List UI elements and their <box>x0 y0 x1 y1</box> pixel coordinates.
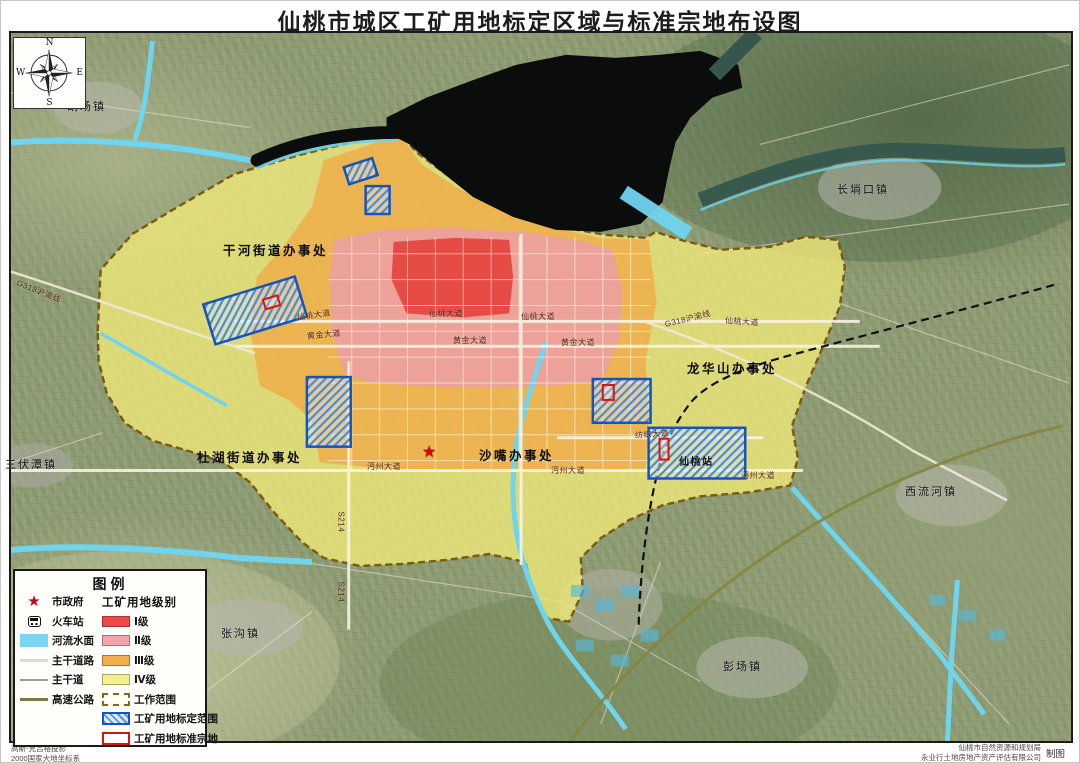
legend-item-label: 主干道 <box>52 672 84 687</box>
compass-icon <box>22 46 76 100</box>
legend-grade-item: Ⅳ级 <box>102 670 218 690</box>
compass-east-label: E <box>76 68 83 78</box>
train-icon <box>20 616 48 627</box>
company-line: 永业行土地房地产资产评估有限公司 <box>921 753 1041 763</box>
legend-item-label: 市政府 <box>52 594 84 609</box>
grade-color-swatch <box>102 635 130 646</box>
compass-south-label: S <box>46 98 52 108</box>
legend-item-star: ★市政府 <box>20 592 102 612</box>
legend-item-label: Ⅰ级 <box>134 614 148 629</box>
legend-item-label: 主干道路 <box>52 653 94 668</box>
legend-item-parcel: 工矿用地标准宗地 <box>102 729 218 749</box>
grade-color-swatch <box>102 616 130 627</box>
legend-item-label: 高速公路 <box>52 692 94 707</box>
water-icon <box>20 634 48 647</box>
map-sheet: 仙桃市城区工矿用地标定区域与标准宗地布设图 <box>0 0 1080 763</box>
legend-item-work-scope: 工作范围 <box>102 690 218 710</box>
star-icon: ★ <box>20 594 48 609</box>
legend-grades-header: 工矿用地级别 <box>102 592 218 612</box>
legend-item-demarcation: 工矿用地标定范围 <box>102 709 218 729</box>
legend-grade-item: Ⅰ级 <box>102 612 218 632</box>
compass-rose: N E S W <box>13 37 86 109</box>
highway-icon <box>20 698 48 702</box>
datum-line: 2000国家大地坐标系 <box>11 754 80 763</box>
legend-grade-item: Ⅱ级 <box>102 631 218 651</box>
legend-item-water: 河流水面 <box>20 631 102 651</box>
legend-item-label: Ⅳ级 <box>134 672 156 687</box>
parcel-swatch <box>102 732 130 745</box>
legend-item-label: 工矿用地标准宗地 <box>134 731 218 746</box>
legend-item-train: 火车站 <box>20 612 102 632</box>
legend-item-label: Ⅲ级 <box>134 653 154 668</box>
legend-item-highway: 高速公路 <box>20 690 102 710</box>
grade-color-swatch <box>102 655 130 666</box>
legend: 图例 ★市政府火车站河流水面主干道路主干道高速公路 工矿用地级别 Ⅰ级Ⅱ级Ⅲ级Ⅳ… <box>13 569 207 747</box>
legend-item-label: 河流水面 <box>52 633 94 648</box>
grade-color-swatch <box>102 674 130 685</box>
legend-symbols-column: ★市政府火车站河流水面主干道路主干道高速公路 <box>20 592 102 748</box>
legend-grades-column: 工矿用地级别 Ⅰ级Ⅱ级Ⅲ级Ⅳ级 工作范围工矿用地标定范围工矿用地标准宗地 <box>102 592 218 748</box>
legend-title: 图例 <box>20 574 201 592</box>
legend-grade-item: Ⅲ级 <box>102 651 218 671</box>
road-light-icon <box>20 659 48 662</box>
credits-note: 仙桃市自然资源和规划局 永业行土地房地产资产评估有限公司 制图 <box>921 743 1065 762</box>
demarcation-swatch <box>102 712 130 725</box>
road-gray-icon <box>20 679 48 682</box>
work-scope-swatch <box>102 693 130 706</box>
legend-item-label: 火车站 <box>52 614 84 629</box>
cartography-credit: 制图 <box>1046 746 1065 760</box>
legend-item-road-light: 主干道路 <box>20 651 102 671</box>
agency-line: 仙桃市自然资源和规划局 <box>921 743 1041 753</box>
legend-item-label: 工作范围 <box>134 692 176 707</box>
legend-item-label: 工矿用地标定范围 <box>134 711 218 726</box>
legend-item-label: Ⅱ级 <box>134 633 151 648</box>
legend-item-road-gray: 主干道 <box>20 670 102 690</box>
compass-north-label: N <box>46 38 54 48</box>
compass-west-label: W <box>16 68 25 78</box>
